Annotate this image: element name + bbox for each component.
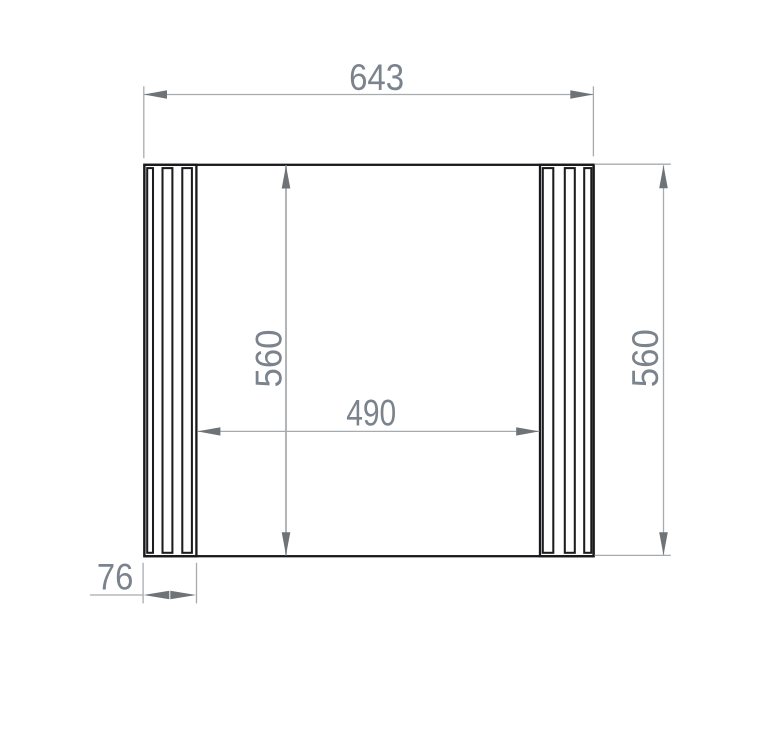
- svg-text:490: 490: [346, 392, 396, 433]
- svg-text:76: 76: [97, 556, 134, 597]
- svg-text:560: 560: [625, 329, 666, 387]
- svg-text:643: 643: [349, 57, 404, 98]
- svg-text:560: 560: [248, 330, 289, 388]
